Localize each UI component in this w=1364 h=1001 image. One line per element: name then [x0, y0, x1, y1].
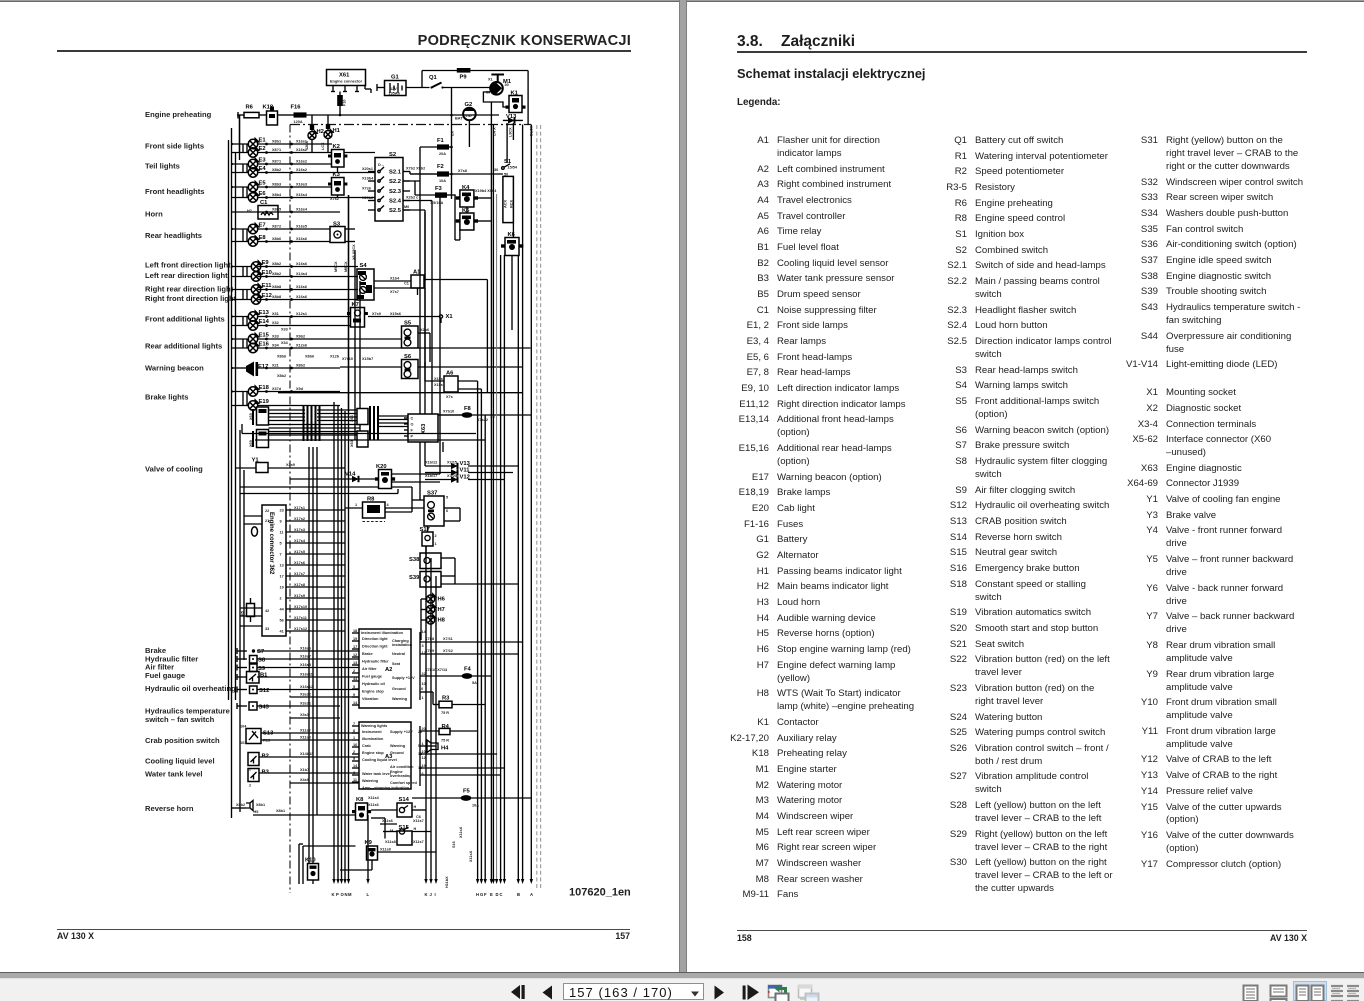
- svg-text:17: 17: [353, 645, 357, 649]
- svg-text:Front additional lights: Front additional lights: [145, 315, 225, 324]
- svg-text:E10: E10: [262, 270, 272, 276]
- svg-text:Front headlights: Front headlights: [145, 187, 204, 196]
- svg-text:13: 13: [280, 564, 284, 568]
- svg-text:1A: 1A: [490, 415, 495, 419]
- svg-text:20A: 20A: [439, 152, 446, 156]
- svg-text:X8b2: X8b2: [296, 364, 305, 368]
- svg-text:7: 7: [280, 553, 282, 557]
- svg-text:H5: H5: [254, 810, 259, 814]
- svg-text:Water tank level: Water tank level: [145, 770, 203, 779]
- svg-text:9: 9: [280, 520, 282, 524]
- svg-text:X17s10: X17s10: [294, 605, 307, 609]
- svg-text:X34: X34: [272, 344, 280, 348]
- svg-text:overheating: overheating: [390, 774, 412, 778]
- svg-text:R6: R6: [246, 105, 254, 111]
- svg-text:X8b6: X8b6: [305, 355, 314, 359]
- svg-text:Amp—stopping indication: Amp—stopping indication: [362, 786, 410, 790]
- svg-text:X8b4: X8b4: [272, 193, 282, 197]
- svg-text:E13: E13: [259, 310, 270, 316]
- svg-text:Air filter: Air filter: [362, 667, 377, 671]
- svg-text:D: D: [496, 892, 499, 897]
- svg-text:44: 44: [280, 608, 285, 612]
- svg-text:Air condition: Air condition: [390, 765, 414, 769]
- svg-text:X11s6: X11s6: [382, 819, 393, 823]
- svg-text:X16s2: X16s2: [296, 148, 307, 152]
- svg-text:42: 42: [265, 609, 269, 613]
- svg-text:X66: X66: [350, 415, 354, 422]
- svg-text:S2.1: S2.1: [389, 170, 402, 176]
- svg-text:G1: G1: [391, 75, 400, 81]
- svg-text:Engine connector: Engine connector: [330, 80, 363, 84]
- svg-text:B: B: [517, 892, 520, 897]
- svg-text:E16: E16: [259, 342, 270, 348]
- svg-text:X7/20: X7/20: [447, 474, 457, 478]
- svg-text:X16s12: X16s12: [300, 685, 313, 689]
- svg-text:X17s3: X17s3: [294, 528, 305, 532]
- svg-text:18: 18: [353, 629, 357, 633]
- svg-text:X3s3: X3s3: [300, 713, 309, 717]
- svg-text:X17s5: X17s5: [294, 550, 305, 554]
- svg-text:Left front direction light: Left front direction light: [145, 261, 231, 270]
- svg-text:Cooling liquid level: Cooling liquid level: [362, 758, 397, 762]
- svg-text:X7s22: X7s22: [477, 418, 488, 422]
- svg-text:107620_1en: 107620_1en: [569, 887, 631, 899]
- svg-text:2: 2: [280, 597, 282, 601]
- svg-text:X11s8: X11s8: [300, 736, 311, 740]
- svg-text:E: E: [490, 892, 493, 897]
- svg-text:X11sX: X11sX: [459, 826, 463, 838]
- svg-text:X3s21: X3s21: [300, 702, 311, 706]
- svg-text:23: 23: [280, 509, 284, 513]
- svg-text:V14: V14: [345, 472, 356, 478]
- svg-text:X8b2: X8b2: [272, 272, 281, 276]
- svg-text:X17s7: X17s7: [294, 572, 305, 576]
- svg-text:Front side lights: Front side lights: [145, 142, 204, 151]
- svg-text:X15b7: X15b7: [362, 357, 373, 361]
- svg-text:120A: 120A: [294, 120, 303, 124]
- svg-text:X8b8: X8b8: [272, 285, 281, 289]
- svg-text:F16: F16: [291, 105, 302, 111]
- svg-text:switch – fan switch: switch – fan switch: [145, 715, 215, 724]
- svg-text:K10: K10: [305, 858, 316, 864]
- svg-text:X1b7: X1b7: [300, 768, 309, 772]
- svg-text:2: 2: [353, 750, 355, 754]
- svg-text:X32: X32: [272, 321, 279, 325]
- svg-text:X17s12: X17s12: [294, 627, 307, 631]
- svg-text:3: 3: [422, 644, 424, 648]
- svg-text:X7b9: X7b9: [425, 649, 434, 653]
- svg-text:Cooling liquid level: Cooling liquid level: [145, 757, 215, 766]
- svg-text:X11s6: X11s6: [368, 803, 379, 807]
- svg-text:5: 5: [353, 685, 355, 689]
- svg-text:X3s22: X3s22: [300, 693, 311, 697]
- svg-text:L9CX: L9CX: [508, 127, 512, 137]
- svg-text:21: 21: [265, 519, 269, 523]
- svg-text:X69: X69: [249, 413, 253, 420]
- svg-text:E12: E12: [262, 293, 272, 299]
- svg-text:X11s7: X11s7: [413, 819, 424, 823]
- svg-text:30: 30: [494, 168, 498, 172]
- svg-text:K: K: [425, 892, 428, 897]
- svg-text:10: 10: [422, 682, 426, 686]
- svg-text:P9: P9: [460, 75, 468, 81]
- svg-text:Warning lights: Warning lights: [361, 724, 387, 728]
- svg-text:X37d: X37d: [272, 387, 282, 391]
- svg-text:E14: E14: [259, 319, 270, 325]
- svg-text:X16s7: X16s7: [300, 655, 311, 659]
- svg-text:X12s1: X12s1: [296, 312, 307, 316]
- svg-text:X1b/17: X1b/17: [425, 474, 437, 478]
- svg-text:12: 12: [353, 653, 357, 657]
- svg-text:Horn: Horn: [145, 210, 163, 219]
- svg-text:E18: E18: [259, 385, 270, 391]
- svg-text:X17s11: X17s11: [294, 616, 307, 620]
- svg-text:X16s2: X16s2: [296, 160, 307, 164]
- svg-text:X7s9: X7s9: [372, 312, 381, 316]
- svg-text:X16s5: X16s5: [296, 225, 307, 229]
- svg-text:E11: E11: [262, 283, 273, 289]
- svg-text:Hydraulic filter: Hydraulic filter: [362, 660, 389, 664]
- svg-text:30: 30: [505, 83, 509, 87]
- svg-text:X8b6: X8b6: [272, 237, 281, 241]
- svg-text:BLCX: BLCX: [529, 125, 533, 136]
- svg-text:15/54: 15/54: [508, 166, 518, 170]
- svg-text:Neutral: Neutral: [392, 652, 405, 656]
- svg-text:Warning: Warning: [390, 744, 406, 748]
- svg-text:12V: 12V: [390, 87, 397, 91]
- svg-text:H11bX: H11bX: [445, 876, 449, 888]
- svg-text:M8CX: M8CX: [344, 261, 348, 272]
- svg-text:C: C: [500, 892, 503, 897]
- svg-text:S4: S4: [360, 263, 368, 269]
- svg-text:4: 4: [387, 503, 390, 507]
- svg-text:S2.2: S2.2: [389, 179, 401, 185]
- svg-text:11: 11: [353, 778, 357, 782]
- svg-text:X11sX: X11sX: [469, 850, 473, 862]
- svg-text:X16s2: X16s2: [296, 168, 307, 172]
- svg-text:Warning beacon: Warning beacon: [145, 364, 204, 373]
- svg-text:Fuel gauge: Fuel gauge: [145, 671, 185, 680]
- svg-text:X34: X34: [281, 341, 289, 345]
- svg-text:X33: X33: [281, 328, 288, 332]
- svg-text:X8b8: X8b8: [272, 295, 281, 299]
- svg-text:75 R: 75 R: [441, 739, 449, 743]
- svg-text:22: 22: [265, 509, 269, 513]
- svg-text:M9CX: M9CX: [334, 261, 338, 272]
- svg-text:X8b1: X8b1: [276, 809, 285, 813]
- svg-text:F2: F2: [437, 164, 444, 170]
- svg-text:S16: S16: [452, 841, 456, 848]
- svg-text:Instrument illumination: Instrument illumination: [361, 631, 404, 635]
- svg-text:E7: E7: [259, 223, 266, 229]
- svg-text:103: 103: [240, 741, 246, 745]
- svg-text:X16s1: X16s1: [296, 140, 307, 144]
- svg-text:Engine stop: Engine stop: [362, 690, 384, 694]
- svg-text:X1: X1: [446, 314, 454, 320]
- svg-text:installation: installation: [392, 643, 413, 647]
- svg-text:E9: E9: [262, 260, 270, 266]
- svg-text:1: 1: [435, 542, 437, 546]
- svg-text:X11s4: X11s4: [368, 796, 380, 800]
- svg-text:X63: X63: [421, 423, 427, 434]
- svg-text:X17s4: X17s4: [294, 539, 306, 543]
- svg-text:104: 104: [240, 725, 247, 729]
- svg-text:Comfort speed: Comfort speed: [390, 781, 417, 785]
- svg-text:L: L: [367, 892, 370, 897]
- svg-text:Hydraulic oil: Hydraulic oil: [362, 682, 385, 686]
- svg-text:S39: S39: [409, 575, 420, 581]
- svg-text:LH X: LH X: [493, 127, 497, 136]
- svg-text:X17s9: X17s9: [294, 594, 305, 598]
- svg-text:7: 7: [353, 722, 355, 726]
- svg-text:Warning: Warning: [392, 697, 408, 701]
- svg-text:E3: E3: [259, 158, 267, 164]
- svg-text:X14s4: X14s4: [296, 272, 308, 276]
- svg-text:H2: H2: [317, 129, 324, 135]
- svg-text:17: 17: [280, 575, 284, 579]
- svg-text:X7b10 X7/13: X7b10 X7/13: [425, 668, 447, 672]
- svg-text:A: A: [530, 892, 533, 897]
- svg-text:10A: 10A: [472, 804, 479, 808]
- svg-text:X12b: X12b: [330, 355, 340, 359]
- svg-text:10A: 10A: [439, 179, 446, 183]
- svg-text:X14b13: X14b13: [300, 752, 313, 756]
- svg-text:X17s2: X17s2: [294, 517, 305, 521]
- svg-text:H: H: [414, 805, 417, 809]
- svg-text:S14: S14: [399, 797, 410, 803]
- svg-text:Engine preheating: Engine preheating: [145, 110, 212, 119]
- svg-text:Supply +12V: Supply +12V: [390, 730, 413, 734]
- svg-text:Ground: Ground: [392, 687, 406, 691]
- svg-text:19: 19: [280, 586, 284, 590]
- svg-text:2: 2: [435, 534, 437, 538]
- svg-text:X20b2: X20b2: [362, 196, 373, 200]
- svg-text:X8b2: X8b2: [272, 262, 281, 266]
- svg-text:12: 12: [422, 756, 426, 760]
- svg-text:E2: E2: [259, 146, 266, 152]
- svg-text:Seat: Seat: [392, 662, 401, 666]
- svg-text:X1b4: X1b4: [390, 277, 400, 281]
- svg-text:Q1: Q1: [429, 75, 438, 81]
- svg-text:75 R: 75 R: [441, 711, 449, 715]
- svg-text:X1: X1: [488, 78, 493, 82]
- svg-text:X15s: X15s: [434, 383, 443, 387]
- svg-text:F10: F10: [343, 99, 347, 106]
- svg-text:H6: H6: [438, 597, 446, 603]
- svg-text:41: 41: [280, 630, 284, 634]
- svg-text:X4s9: X4s9: [300, 778, 309, 782]
- svg-text:Ground: Ground: [390, 751, 404, 755]
- svg-text:X7s: X7s: [446, 395, 453, 399]
- svg-text:X8?2: X8?2: [272, 225, 281, 229]
- svg-text:Supply +12V: Supply +12V: [392, 676, 415, 680]
- svg-text:S7: S7: [257, 649, 264, 655]
- svg-text:Brake: Brake: [362, 652, 373, 656]
- svg-text:D→: D→: [378, 163, 385, 167]
- svg-text:33: 33: [265, 627, 269, 631]
- svg-text:H2: H2: [247, 209, 252, 213]
- svg-text:X20s1: X20s1: [362, 167, 373, 171]
- svg-text:X8b6: X8b6: [277, 355, 286, 359]
- svg-text:E4: E4: [259, 166, 267, 172]
- svg-text:10: 10: [419, 687, 423, 691]
- svg-text:11: 11: [280, 531, 284, 535]
- svg-text:5A: 5A: [472, 681, 477, 685]
- svg-text:X16s11: X16s11: [300, 673, 313, 677]
- svg-text:G: G: [480, 892, 483, 897]
- svg-text:Watering: Watering: [362, 779, 379, 783]
- svg-text:X8b2: X8b2: [236, 803, 245, 807]
- svg-text:X7s2: X7s2: [330, 197, 339, 201]
- svg-text:X11s8: X11s8: [380, 848, 391, 852]
- svg-text:F3: F3: [435, 186, 443, 192]
- svg-text:RCX: RCX: [510, 200, 514, 208]
- svg-text:S2.3: S2.3: [389, 189, 402, 195]
- svg-text:19: 19: [353, 637, 357, 641]
- svg-text:X1b/12: X1b/12: [425, 461, 437, 465]
- svg-text:X60: X60: [350, 440, 354, 447]
- svg-text:X8b2: X8b2: [277, 374, 286, 378]
- svg-text:X61: X61: [339, 73, 350, 79]
- svg-text:1: 1: [353, 736, 355, 740]
- svg-text:X16s4: X16s4: [296, 193, 308, 197]
- svg-text:X11s7: X11s7: [413, 840, 424, 844]
- svg-text:1: 1: [355, 503, 357, 507]
- svg-text:R5: R5: [241, 611, 245, 616]
- svg-text:H1: H1: [333, 128, 341, 134]
- svg-text:X15s6: X15s6: [390, 312, 401, 316]
- svg-text:X16s4: X16s4: [296, 208, 308, 212]
- svg-text:X16s3: X16s3: [296, 183, 307, 187]
- svg-text:X9d: X9d: [296, 387, 304, 391]
- svg-text:Right rear direction light: Right rear direction light: [145, 285, 234, 294]
- svg-text:X7/15: X7/15: [447, 461, 457, 465]
- svg-text:2: 2: [353, 669, 355, 673]
- svg-text:J: J: [430, 892, 433, 897]
- svg-text:X31: X31: [272, 312, 279, 316]
- svg-text:X8b3: X8b3: [272, 183, 281, 187]
- svg-text:C: C: [411, 417, 414, 421]
- svg-text:H: H: [414, 827, 417, 831]
- svg-text:A2: A2: [385, 667, 392, 673]
- svg-text:Direction light: Direction light: [362, 637, 388, 641]
- svg-text:2: 2: [249, 784, 251, 788]
- svg-text:X19b4 X9b4: X19b4 X9b4: [475, 189, 497, 193]
- svg-text:16: 16: [353, 743, 357, 747]
- svg-text:X16s6: X16s6: [296, 295, 307, 299]
- svg-text:X19b4: X19b4: [362, 177, 374, 181]
- svg-text:X7s8: X7s8: [458, 169, 467, 173]
- svg-text:O: O: [411, 423, 414, 427]
- svg-text:F4: F4: [464, 667, 472, 673]
- svg-text:X8b1: X8b1: [272, 140, 281, 144]
- svg-text:Teil lights: Teil lights: [145, 162, 180, 171]
- svg-text:X16s6: X16s6: [300, 647, 311, 651]
- svg-text:56: 56: [280, 619, 284, 623]
- svg-text:X21: X21: [272, 364, 279, 368]
- svg-text:S38: S38: [409, 557, 420, 563]
- svg-text:X7s10: X7s10: [342, 357, 353, 361]
- svg-text:M: M: [348, 892, 352, 897]
- svg-text:BAT: BAT: [455, 117, 463, 121]
- svg-text:7.5/10A: 7.5/10A: [430, 201, 444, 205]
- svg-text:5: 5: [418, 744, 420, 748]
- svg-text:K9: K9: [365, 840, 373, 846]
- svg-text:E19: E19: [259, 399, 270, 405]
- svg-text:X8?1: X8?1: [272, 160, 281, 164]
- svg-text:K8: K8: [356, 797, 364, 803]
- svg-text:X7s7: X7s7: [390, 290, 399, 294]
- svg-text:X3s9: X3s9: [286, 463, 295, 467]
- svg-text:Engine stop: Engine stop: [362, 751, 384, 755]
- svg-text:X17s1: X17s1: [294, 506, 305, 510]
- svg-text:6: 6: [446, 509, 448, 513]
- svg-text:Left rear direction light: Left rear direction light: [145, 271, 228, 280]
- svg-text:Direction light: Direction light: [362, 645, 388, 649]
- svg-text:S2.5: S2.5: [389, 208, 402, 214]
- svg-text:E6: E6: [259, 191, 267, 197]
- svg-text:X11s2: X11s2: [300, 729, 311, 733]
- svg-text:X12s6: X12s6: [296, 344, 307, 348]
- svg-text:F: F: [484, 892, 487, 897]
- svg-text:X16s8: X16s8: [300, 663, 311, 667]
- svg-text:H: H: [476, 892, 479, 897]
- svg-text:C1: C1: [404, 282, 409, 286]
- svg-text:X8?1: X8?1: [272, 148, 281, 152]
- svg-text:E5: E5: [259, 181, 267, 187]
- svg-text:X2b2 c: X2b2 c: [406, 196, 418, 200]
- svg-text:X33: X33: [272, 335, 279, 339]
- svg-text:135Ah: 135Ah: [389, 92, 401, 96]
- svg-text:Rear additional lights: Rear additional lights: [145, 342, 222, 351]
- svg-text:X8b5: X8b5: [272, 208, 281, 212]
- svg-text:X7b10: X7b10: [443, 410, 454, 414]
- svg-text:X9b2: X9b2: [296, 335, 305, 339]
- svg-text:Rear headlights: Rear headlights: [145, 231, 202, 240]
- svg-text:X8b2: X8b2: [272, 168, 281, 172]
- svg-text:X17s8: X17s8: [294, 583, 305, 587]
- svg-text:Hydraulic oil overheating: Hydraulic oil overheating: [145, 684, 236, 693]
- svg-text:Vibration: Vibration: [362, 697, 379, 701]
- svg-text:X17s6: X17s6: [294, 561, 305, 565]
- svg-text:F8: F8: [464, 406, 472, 412]
- svg-text:Reverse horn: Reverse horn: [145, 804, 194, 813]
- svg-text:X16s6: X16s6: [296, 262, 307, 266]
- svg-text:Fuel gauge: Fuel gauge: [362, 675, 382, 679]
- svg-text:1: 1: [422, 696, 424, 700]
- svg-text:S1: S1: [504, 159, 512, 165]
- svg-text:X16s6: X16s6: [296, 237, 307, 241]
- svg-text:13: 13: [353, 661, 357, 665]
- svg-text:5: 5: [280, 542, 282, 546]
- svg-text:E15: E15: [259, 333, 270, 339]
- svg-text:E1: E1: [259, 138, 267, 144]
- svg-text:Valve of cooling: Valve of cooling: [145, 465, 203, 474]
- svg-text:S2: S2: [389, 152, 396, 158]
- svg-text:H7: H7: [438, 607, 445, 613]
- svg-text:F1: F1: [437, 138, 445, 144]
- svg-text:X8b1: X8b1: [256, 803, 265, 807]
- svg-text:E8: E8: [259, 235, 267, 241]
- svg-text:X7s6: X7s6: [362, 187, 371, 191]
- svg-text:X7b2 X9b2: X7b2 X9b2: [406, 167, 425, 171]
- svg-text:P: P: [336, 892, 339, 897]
- svg-text:X7/11: X7/11: [443, 637, 453, 641]
- svg-text:H4: H4: [441, 746, 449, 752]
- svg-text:Crab: Crab: [362, 744, 371, 748]
- svg-text:Right front direction light: Right front direction light: [145, 294, 237, 303]
- svg-text:5: 5: [446, 496, 448, 500]
